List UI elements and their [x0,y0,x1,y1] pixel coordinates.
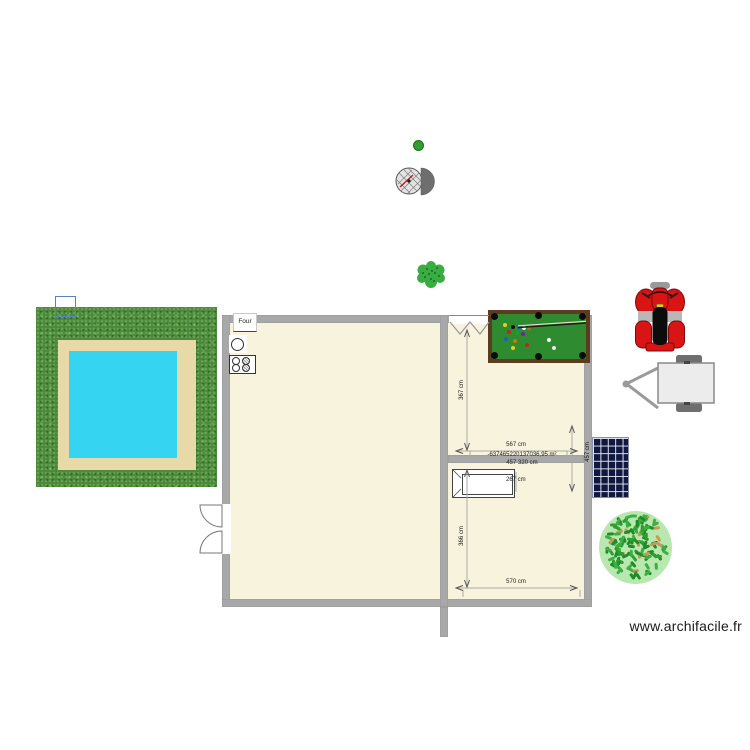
dim-bottom-room-height: 366 cm [459,526,465,546]
dim-area-glitch: -637465220137036,95 m² [452,452,592,458]
dimension-lines [0,0,750,750]
dim-bed-width: 267 cm [506,477,526,483]
floorplan-canvas: Four [0,0,750,750]
dim-right-side-height: 457 cm [585,442,591,462]
watermark: www.archifacile.fr [629,618,742,634]
dim-top-room-width: 567 cm [486,442,546,448]
dim-bottom-room-width: 570 cm [486,579,546,585]
dim-top-room-height: 367 cm [459,380,465,400]
dim-wall-length: 457 320 cm [452,460,592,466]
